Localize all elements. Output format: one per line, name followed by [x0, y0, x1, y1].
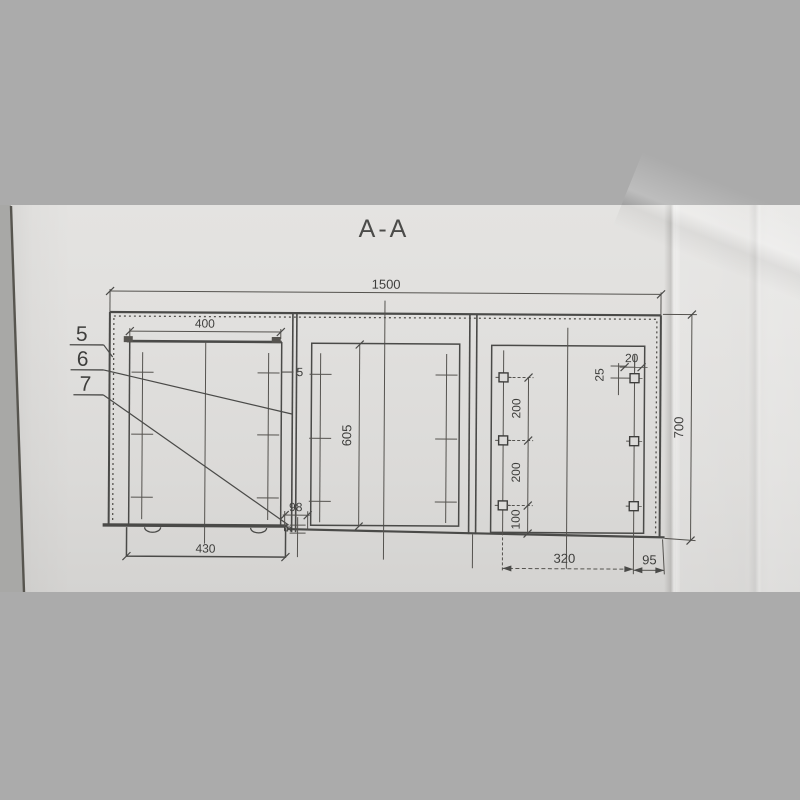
dim-left-opening-group: 400 [126, 316, 285, 339]
bolt-holes [495, 373, 643, 511]
dim-hole-pitch-group: 200 200 100 [507, 373, 534, 537]
section-title: A-A [359, 215, 410, 243]
left-compartment [102, 336, 290, 561]
section-drawing: 1500 700 [0, 0, 800, 800]
right-compartment [490, 327, 644, 569]
dim-left-opening-width: 400 [195, 317, 215, 331]
paper-edge-shadow [0, 205, 24, 592]
dim-base-plate-group: 320 95 [502, 532, 664, 574]
dim-hole-top-offset: 25 [593, 368, 607, 382]
photo-of-drawing: 1500 700 [0, 0, 800, 800]
dim-overall-height: 700 [671, 417, 686, 439]
dim-base-edge-offset: 95 [642, 552, 657, 567]
part-label-7: 7 [80, 373, 92, 396]
dim-bottom-gap: 5 [283, 526, 295, 532]
dim-overall-height-group: 700 [662, 310, 697, 544]
part-label-6: 6 [77, 348, 89, 371]
dim-overall-width-group: 1500 [106, 275, 665, 315]
dim-bottom-offset: 98 [289, 500, 303, 514]
dim-hole-edge-offset: 20 [625, 351, 639, 365]
part-label-5: 5 [76, 323, 88, 346]
dim-middle-inner-height-group: 605 [339, 340, 364, 530]
dim-middle-inner-height: 605 [339, 425, 354, 447]
part-label-callouts: 5 6 7 [69, 323, 293, 525]
dim-hole-bottom-offset: 100 [509, 509, 523, 529]
dim-base-plate-width: 320 [554, 551, 576, 566]
outer-cabinet-outline [108, 299, 666, 569]
dim-overall-width: 1500 [372, 277, 401, 292]
dim-hole-pitch-lower: 200 [509, 462, 523, 482]
dim-hole-pitch-upper: 200 [509, 398, 523, 418]
dim-left-base-width: 430 [195, 542, 215, 556]
dim-panel-gap: 5 [297, 365, 304, 379]
